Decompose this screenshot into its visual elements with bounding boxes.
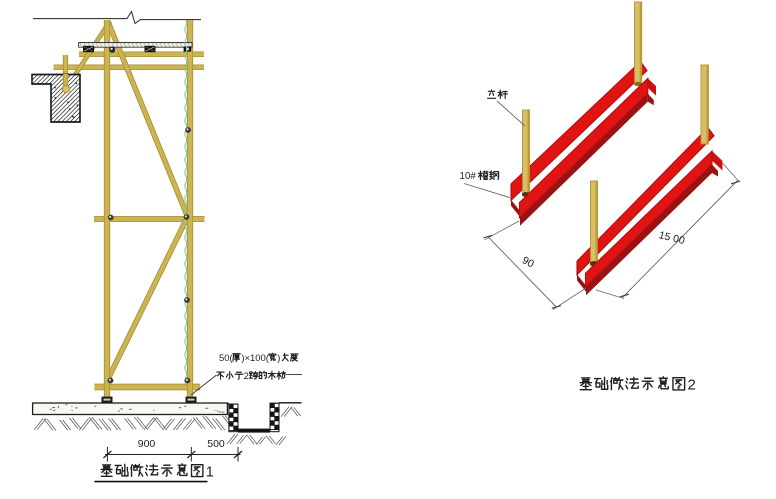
- svg-text:): ): [277, 353, 280, 364]
- svg-text:900: 900: [138, 438, 156, 450]
- svg-text:2: 2: [244, 371, 249, 382]
- svg-text:)×100(: )×100(: [241, 353, 269, 364]
- svg-text:90: 90: [520, 254, 536, 270]
- svg-text:2: 2: [688, 377, 696, 394]
- svg-text:500: 500: [207, 438, 225, 450]
- svg-text:10#: 10#: [460, 171, 477, 182]
- svg-text:1: 1: [206, 464, 214, 480]
- svg-text:50(: 50(: [219, 353, 233, 364]
- svg-text:15 00: 15 00: [658, 229, 687, 247]
